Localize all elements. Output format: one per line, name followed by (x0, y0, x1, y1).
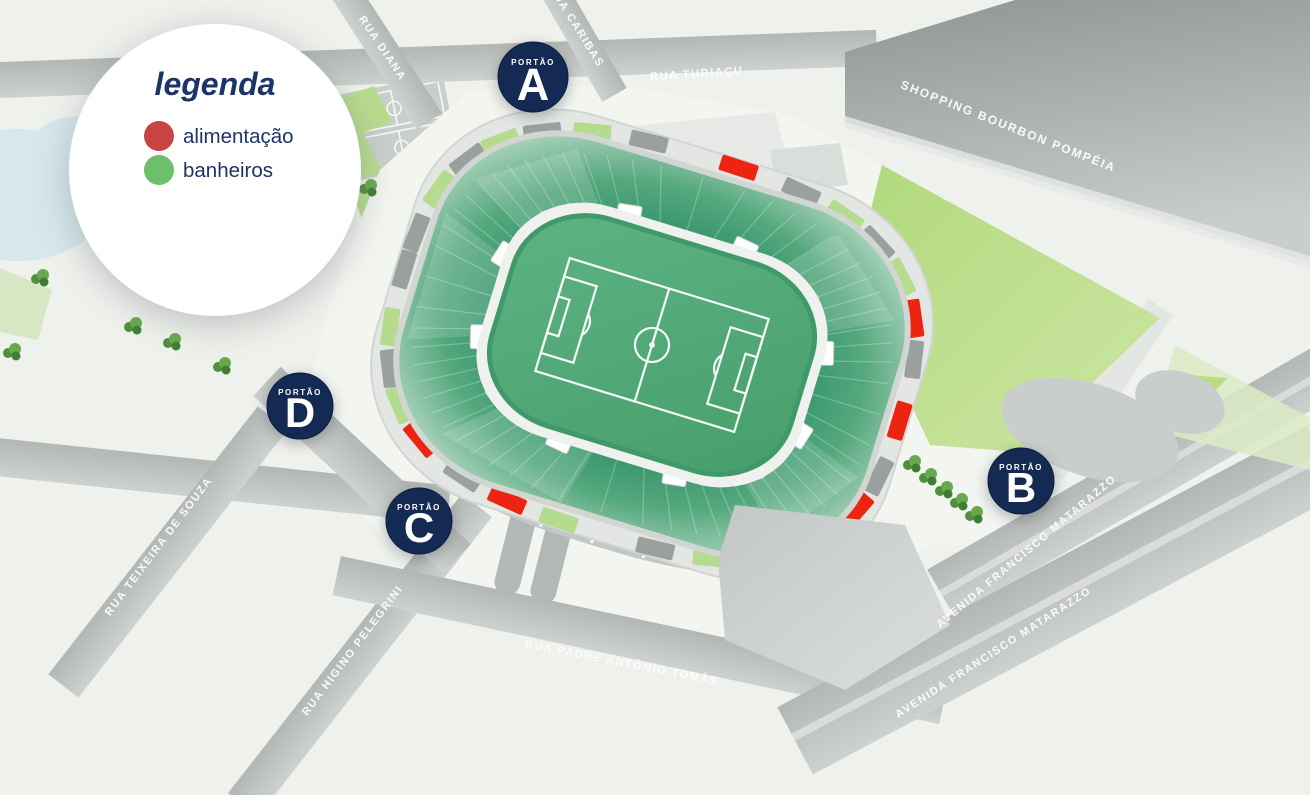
gate-portao-a[interactable]: PORTÃO A (498, 42, 568, 112)
banheiros-dot-icon (144, 155, 174, 185)
gate-portao-b[interactable]: PORTÃO B (988, 448, 1054, 514)
gate-portao-d[interactable]: PORTÃO D (267, 373, 333, 439)
legend-label-banheiros: banheiros (183, 159, 273, 182)
legend-label-alimentacao: alimentação (183, 125, 294, 148)
gate-a-letter: A (517, 59, 550, 110)
gate-b-letter: B (1006, 464, 1036, 511)
gate-c-letter: C (404, 504, 434, 551)
legend: legenda alimentação banheiros (69, 24, 361, 316)
alimentacao-dot-icon (144, 121, 174, 151)
stadium-map: RUA DIANA RUA CARIBAS RUA TURIAÇU SHOPPI… (0, 0, 1310, 795)
map-canvas: RUA DIANA RUA CARIBAS RUA TURIAÇU SHOPPI… (0, 0, 1310, 795)
gate-d-letter: D (285, 389, 315, 436)
legend-item-banheiros: banheiros (144, 155, 273, 185)
legend-item-alimentacao: alimentação (144, 121, 294, 151)
legend-title: legenda (155, 66, 276, 102)
gate-portao-c[interactable]: PORTÃO C (386, 488, 452, 554)
